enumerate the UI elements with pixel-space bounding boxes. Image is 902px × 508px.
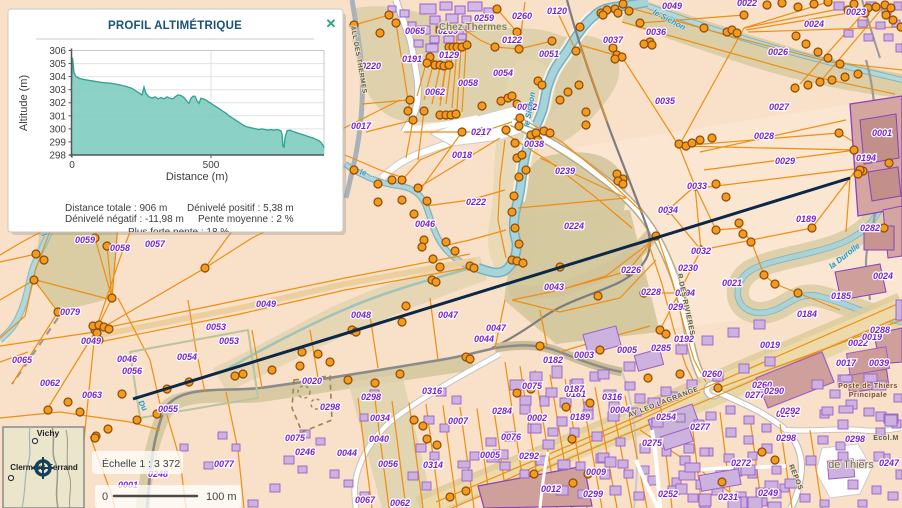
svg-text:0184: 0184 [797, 309, 817, 319]
svg-text:0009: 0009 [586, 467, 606, 477]
svg-text:0217: 0217 [471, 127, 492, 137]
svg-text:0231: 0231 [718, 492, 738, 502]
svg-text:0314: 0314 [423, 460, 443, 470]
svg-text:0285: 0285 [651, 343, 672, 353]
svg-text:0224: 0224 [564, 221, 584, 231]
svg-text:298: 298 [49, 151, 66, 162]
svg-text:0185: 0185 [831, 291, 852, 301]
svg-text:0062: 0062 [390, 498, 410, 508]
svg-text:Principale: Principale [849, 392, 887, 399]
svg-text:0034: 0034 [658, 205, 678, 215]
svg-text:0035: 0035 [655, 96, 676, 106]
svg-text:0316: 0316 [422, 386, 443, 396]
svg-text:0290: 0290 [764, 386, 784, 396]
svg-text:0222: 0222 [466, 197, 486, 207]
svg-text:0187: 0187 [564, 384, 585, 394]
svg-text:0076: 0076 [501, 432, 522, 442]
svg-text:0247: 0247 [879, 458, 900, 468]
svg-text:0252: 0252 [658, 489, 678, 499]
svg-text:0299: 0299 [583, 489, 603, 499]
svg-text:0001: 0001 [872, 128, 892, 138]
svg-text:Chez Thermes: Chez Thermes [439, 22, 508, 33]
svg-text:0024: 0024 [873, 271, 893, 281]
svg-text:Altitude (m): Altitude (m) [18, 75, 30, 131]
svg-text:0246: 0246 [295, 447, 316, 457]
svg-text:PROFIL ALTIMÉTRIQUE: PROFIL ALTIMÉTRIQUE [108, 19, 242, 32]
svg-text:0047: 0047 [486, 323, 507, 333]
svg-text:305: 305 [49, 59, 66, 70]
svg-text:0053: 0053 [206, 322, 226, 332]
svg-text:0298: 0298 [845, 434, 865, 444]
svg-text:0298: 0298 [320, 402, 340, 412]
svg-text:0067: 0067 [355, 495, 376, 505]
svg-text:Ecol.M: Ecol.M [873, 435, 899, 442]
svg-text:0022: 0022 [737, 0, 757, 8]
svg-text:0007: 0007 [448, 416, 469, 426]
svg-text:0226: 0226 [621, 265, 642, 275]
svg-text:0075: 0075 [285, 433, 306, 443]
svg-text:500: 500 [203, 160, 220, 171]
svg-text:0189: 0189 [796, 214, 816, 224]
svg-text:0062: 0062 [40, 378, 60, 388]
svg-text:0017: 0017 [351, 121, 372, 131]
svg-text:0043: 0043 [544, 282, 564, 292]
svg-text:0034: 0034 [370, 413, 390, 423]
svg-text:306: 306 [49, 46, 66, 57]
svg-text:304: 304 [49, 72, 66, 83]
svg-text:0053: 0053 [219, 336, 239, 346]
svg-text:0023: 0023 [846, 7, 866, 17]
svg-text:0062: 0062 [425, 87, 445, 97]
svg-text:0026: 0026 [768, 47, 789, 57]
svg-text:0003: 0003 [574, 350, 594, 360]
svg-text:0120: 0120 [547, 6, 567, 16]
svg-text:0191: 0191 [402, 54, 422, 64]
svg-text:Distance totale : 906 m: Distance totale : 906 m [65, 203, 167, 214]
svg-text:✕: ✕ [326, 16, 337, 31]
svg-text:Pente moyenne : 2 %: Pente moyenne : 2 % [198, 214, 294, 225]
svg-text:0: 0 [69, 160, 75, 171]
svg-text:0020: 0020 [302, 376, 322, 386]
svg-text:0277: 0277 [690, 422, 711, 432]
svg-text:0260: 0260 [512, 11, 532, 21]
svg-text:0032: 0032 [691, 246, 711, 256]
svg-text:0292: 0292 [519, 451, 539, 461]
svg-text:0028: 0028 [754, 131, 774, 141]
svg-text:0018: 0018 [452, 150, 472, 160]
svg-text:0284: 0284 [492, 406, 512, 416]
svg-text:0230: 0230 [678, 263, 698, 273]
svg-text:0055: 0055 [158, 404, 179, 414]
svg-text:0017: 0017 [836, 358, 857, 368]
svg-text:0044: 0044 [337, 448, 357, 458]
svg-text:0037: 0037 [603, 35, 624, 45]
svg-text:Distance (m): Distance (m) [166, 171, 228, 183]
svg-text:0051: 0051 [539, 49, 559, 59]
svg-text:Dénivelé positif : 5,38 m: Dénivelé positif : 5,38 m [187, 203, 294, 214]
svg-text:0046: 0046 [117, 354, 138, 364]
svg-text:302: 302 [49, 98, 66, 109]
svg-text:0058: 0058 [458, 78, 478, 88]
svg-text:0063: 0063 [82, 390, 102, 400]
svg-text:0048: 0048 [351, 310, 371, 320]
svg-text:0065: 0065 [405, 26, 426, 36]
svg-text:0056: 0056 [378, 459, 399, 469]
svg-text:0033: 0033 [687, 181, 707, 191]
svg-text:de Thiers: de Thiers [828, 459, 874, 471]
svg-text:0194: 0194 [856, 153, 876, 163]
svg-text:0019: 0019 [760, 340, 780, 350]
svg-text:0054: 0054 [493, 68, 513, 78]
svg-text:0024: 0024 [804, 19, 824, 29]
svg-text:0282: 0282 [860, 223, 880, 233]
svg-text:0044: 0044 [474, 334, 494, 344]
svg-text:100 m: 100 m [206, 491, 237, 503]
svg-text:0021: 0021 [722, 278, 742, 288]
svg-text:Dénivelé négatif : -11,98 m: Dénivelé négatif : -11,98 m [65, 214, 184, 225]
svg-text:0040: 0040 [369, 434, 389, 444]
svg-text:0059: 0059 [75, 235, 95, 245]
svg-text:Poste de Thiers: Poste de Thiers [838, 383, 898, 390]
svg-text:303: 303 [49, 85, 66, 96]
svg-text:0: 0 [102, 491, 108, 503]
svg-text:Vichy: Vichy [37, 428, 60, 438]
svg-text:0002: 0002 [527, 413, 547, 423]
svg-text:0292: 0292 [780, 406, 800, 416]
svg-text:301: 301 [49, 111, 66, 122]
svg-text:0057: 0057 [145, 239, 166, 249]
svg-text:0122: 0122 [502, 35, 522, 45]
svg-text:0272: 0272 [731, 458, 751, 468]
svg-text:0254: 0254 [656, 412, 676, 422]
svg-text:0077: 0077 [214, 459, 235, 469]
svg-text:0046: 0046 [415, 219, 436, 229]
svg-text:0288: 0288 [870, 325, 890, 335]
svg-text:0228: 0228 [641, 287, 661, 297]
svg-text:0029: 0029 [775, 156, 795, 166]
svg-text:0129: 0129 [439, 50, 459, 60]
svg-text:0036: 0036 [646, 27, 667, 37]
svg-text:300: 300 [49, 124, 66, 135]
svg-text:0298: 0298 [776, 433, 796, 443]
svg-text:0058: 0058 [110, 243, 130, 253]
svg-text:0298: 0298 [361, 392, 381, 402]
svg-text:0005: 0005 [480, 450, 501, 460]
svg-text:299: 299 [49, 137, 66, 148]
svg-text:0182: 0182 [543, 355, 563, 365]
svg-text:0056: 0056 [122, 366, 143, 376]
svg-text:0039: 0039 [869, 358, 889, 368]
svg-text:0049: 0049 [662, 1, 682, 11]
svg-text:0054: 0054 [177, 352, 197, 362]
svg-text:0047: 0047 [438, 310, 459, 320]
svg-text:0239: 0239 [555, 166, 575, 176]
svg-text:0012: 0012 [541, 484, 561, 494]
svg-text:0075: 0075 [522, 381, 543, 391]
svg-text:0079: 0079 [60, 307, 80, 317]
svg-text:0049: 0049 [256, 299, 276, 309]
svg-text:0005: 0005 [617, 345, 638, 355]
svg-text:Échelle 1 : 3 372: Échelle 1 : 3 372 [102, 457, 180, 470]
svg-text:0049: 0049 [81, 336, 101, 346]
svg-text:0189: 0189 [570, 412, 590, 422]
svg-text:0249: 0249 [758, 488, 778, 498]
svg-text:0260: 0260 [702, 369, 722, 379]
svg-text:0065: 0065 [12, 355, 33, 365]
svg-text:0038: 0038 [524, 139, 544, 149]
svg-text:0277: 0277 [745, 390, 766, 400]
svg-text:0275: 0275 [642, 438, 663, 448]
svg-text:0316: 0316 [602, 392, 623, 402]
svg-text:0027: 0027 [769, 102, 790, 112]
